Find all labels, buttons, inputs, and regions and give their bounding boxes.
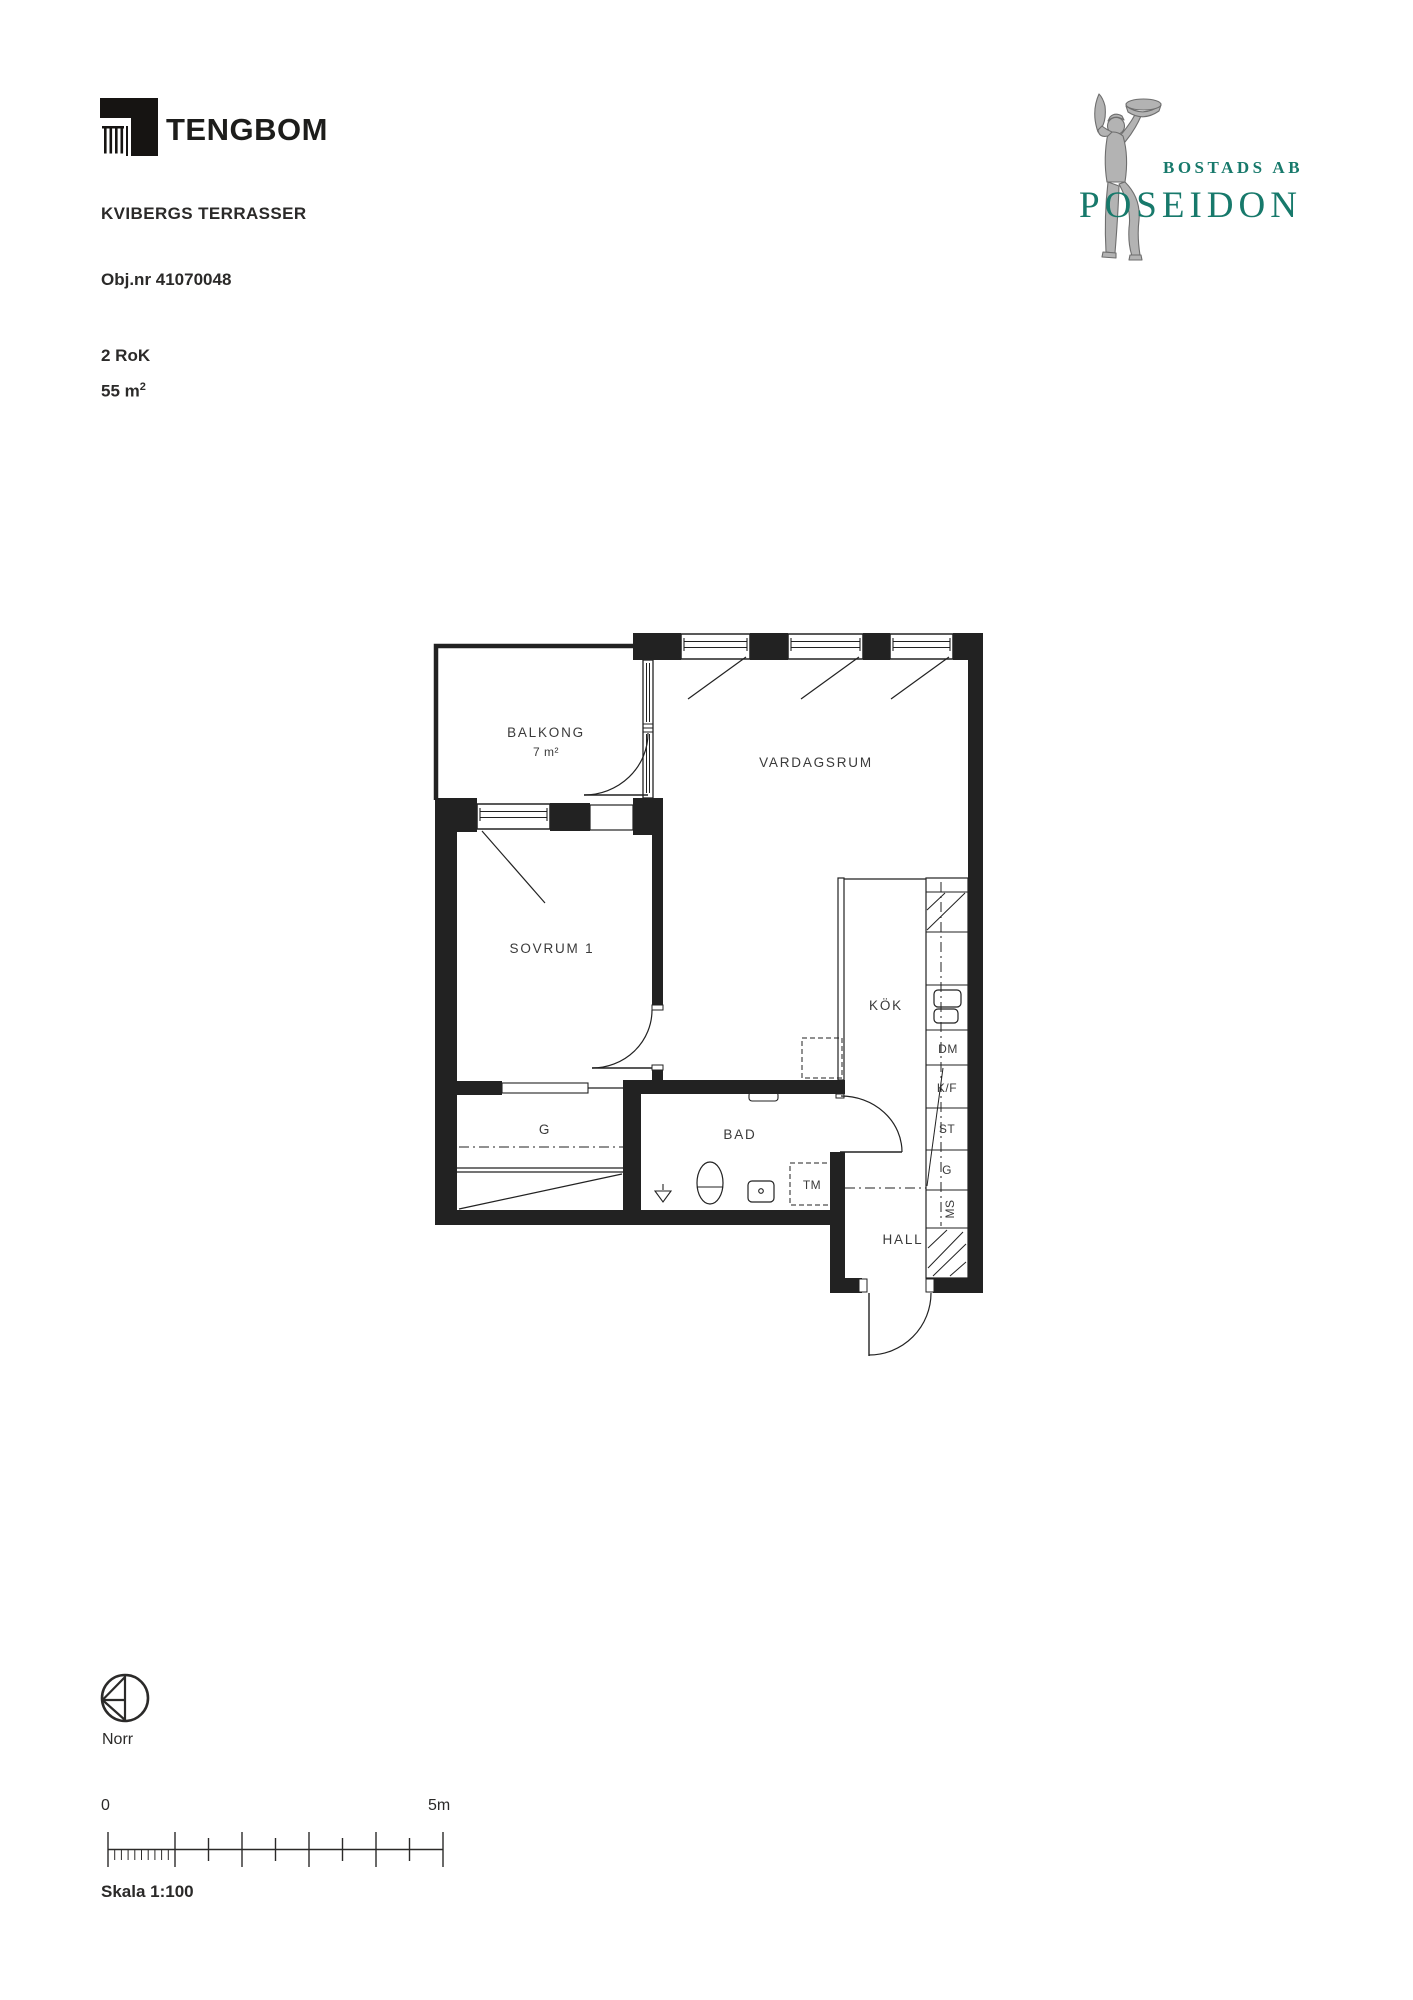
balcony-railing: [436, 646, 634, 800]
label-st: ST: [939, 1122, 956, 1136]
north-arrow-icon: [98, 1671, 154, 1727]
poseidon-statue-icon: [1085, 86, 1165, 264]
label-kok: KÖK: [869, 998, 903, 1013]
label-g-cabinet: G: [942, 1163, 952, 1177]
label-balkong: BALKONG: [507, 725, 585, 740]
entrance-door: [859, 1279, 934, 1356]
bedroom-door: [592, 1005, 663, 1070]
floorplan-page: TENGBOM KVIBERGS TERRASSER Obj.nr 410700…: [0, 0, 1413, 2000]
label-tm: TM: [803, 1178, 821, 1192]
label-kf: K/F: [937, 1081, 957, 1095]
tengbom-wordmark: TENGBOM: [166, 112, 328, 148]
label-vardagsrum: VARDAGSRUM: [759, 755, 873, 770]
scalebar: [100, 1828, 460, 1872]
scalebar-max: 5m: [428, 1797, 450, 1815]
scale-label: Skala 1:100: [101, 1882, 194, 1902]
label-bad: BAD: [723, 1127, 756, 1142]
closet-g: [457, 1083, 625, 1209]
bathroom-door: [836, 1094, 902, 1152]
room-count: 2 RoK: [101, 346, 150, 366]
project-title: KVIBERGS TERRASSER: [101, 204, 307, 224]
tengbom-logo-icon: [100, 98, 158, 156]
scalebar-zero: 0: [101, 1797, 110, 1815]
poseidon-wordmark: POSEIDON: [1079, 184, 1302, 227]
living-room-windows: [681, 634, 953, 699]
floorplan-drawing: BALKONG 7 m² VARDAGSRUM SOVRUM 1 KÖK BAD…: [420, 600, 1000, 1380]
object-number: Obj.nr 41070048: [101, 270, 231, 290]
apartment-area: 55 m2: [101, 381, 146, 402]
label-balkong-area: 7 m²: [533, 745, 559, 759]
label-sovrum: SOVRUM 1: [510, 941, 595, 956]
balcony-door: [584, 660, 653, 798]
label-closet-g: G: [539, 1122, 551, 1137]
label-dm: DM: [938, 1042, 958, 1056]
poseidon-line1: BOSTADS AB: [1163, 158, 1303, 178]
label-ms: MS: [943, 1200, 957, 1219]
north-label: Norr: [102, 1731, 133, 1749]
label-hall: HALL: [883, 1232, 924, 1247]
